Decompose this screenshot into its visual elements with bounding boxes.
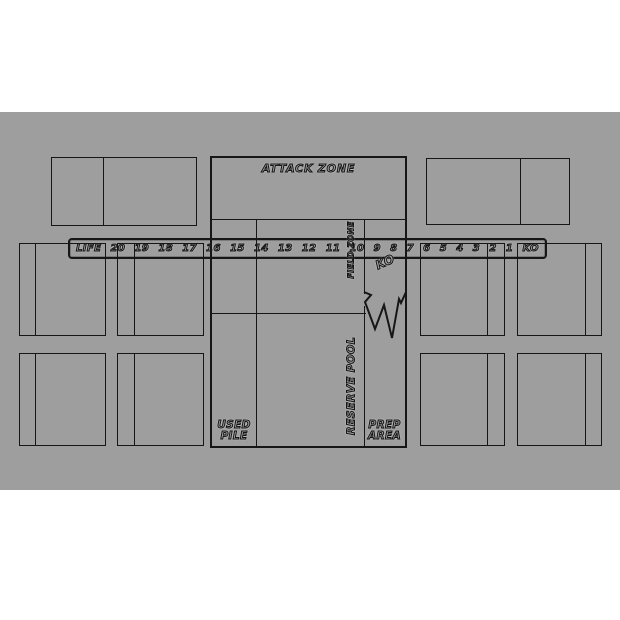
used-pile-column-divider bbox=[256, 219, 257, 446]
used-pile-label: USED PILE bbox=[212, 420, 256, 442]
attack-zone-divider bbox=[212, 219, 405, 220]
right-card-slot-3 bbox=[420, 353, 505, 446]
slot-strip-line bbox=[134, 354, 135, 445]
field-zone-label: FIELD ZONE bbox=[347, 221, 356, 278]
playmat-canvas: LIFE 20 19 18 17 16 15 14 13 12 11 10 9 … bbox=[0, 0, 620, 620]
slot-strip-line bbox=[487, 244, 488, 335]
top-left-double-card-slot bbox=[51, 157, 197, 226]
life-cell-7: 7 bbox=[407, 244, 414, 254]
top-right-double-card-slot bbox=[426, 158, 570, 225]
used-pile-line2: PILE bbox=[212, 431, 256, 442]
slot-strip-line bbox=[585, 354, 586, 445]
slot-strip-line bbox=[35, 244, 36, 335]
attack-zone-label: ATTACK ZONE bbox=[212, 162, 405, 175]
explosion-burst-icon bbox=[362, 285, 408, 341]
slot-strip-line bbox=[35, 354, 36, 445]
right-card-slot-4 bbox=[517, 353, 602, 446]
ko-zone-label: KO bbox=[373, 252, 397, 273]
left-card-slot-3 bbox=[19, 353, 106, 446]
right-card-slot-1 bbox=[420, 243, 505, 336]
reserve-pool-label: RESERVE POOL bbox=[345, 337, 358, 435]
slot-strip-line bbox=[585, 244, 586, 335]
left-card-slot-4 bbox=[117, 353, 204, 446]
left-card-slot-2 bbox=[117, 243, 204, 336]
prep-area-line2: AREA bbox=[364, 431, 405, 442]
slot-strip-line bbox=[487, 354, 488, 445]
slot-divider bbox=[103, 158, 104, 225]
slot-divider bbox=[520, 159, 521, 224]
playmat-surface: LIFE 20 19 18 17 16 15 14 13 12 11 10 9 … bbox=[0, 112, 620, 490]
prep-area-label: PREP AREA bbox=[364, 420, 405, 442]
center-play-panel: ATTACK ZONE FIELD ZONE RESERVE POOL KO U… bbox=[210, 156, 407, 448]
field-reserve-divider bbox=[212, 313, 366, 314]
slot-strip-line bbox=[134, 244, 135, 335]
life-cell-1: 1 bbox=[506, 244, 513, 254]
prep-column-divider-upper bbox=[364, 219, 365, 294]
left-card-slot-1 bbox=[19, 243, 106, 336]
right-card-slot-2 bbox=[517, 243, 602, 336]
